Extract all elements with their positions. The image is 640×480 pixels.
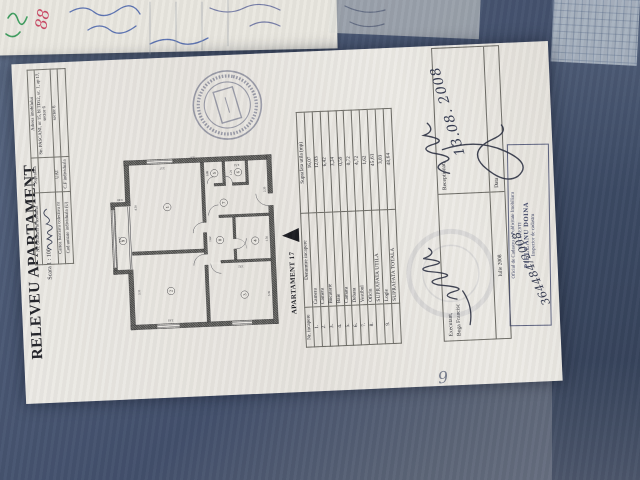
receptionat-signature bbox=[423, 119, 523, 182]
dimension-label: 3.37 bbox=[118, 236, 122, 242]
handwritten-scribble bbox=[41, 202, 54, 254]
dimension-label: 2.20 bbox=[262, 186, 266, 192]
dimension-label: 4.50 bbox=[133, 205, 137, 211]
apartment-caption: APARTAMENT 17 bbox=[287, 251, 298, 314]
dimension-label: 1.50 bbox=[264, 236, 268, 242]
dimension-label: 0.86 bbox=[205, 170, 209, 176]
room-circle-number: 2 bbox=[168, 290, 173, 292]
dimension-label: 5.97 bbox=[189, 155, 195, 159]
dimension-label: 2.51 bbox=[233, 163, 239, 167]
room-number-markers: 123456789 bbox=[116, 168, 261, 304]
photograph-of-document: 88 RELEVEU APARTAMENT Scara 1 : 100 Nr. … bbox=[0, 0, 640, 480]
room-area-table: Nr. incapere Denumire incapere Suprafata… bbox=[296, 108, 402, 348]
dimension-label: 0.90 bbox=[117, 198, 123, 202]
dimension-label: 3.57 bbox=[159, 166, 165, 170]
releveu-document-sheet: RELEVEU APARTAMENT Scara 1 : 100 Nr. cad… bbox=[11, 41, 562, 404]
dimension-label: 1.62 bbox=[208, 236, 212, 242]
signatures-overlay bbox=[386, 41, 563, 388]
fabric-background bbox=[552, 0, 640, 480]
svg-text:88: 88 bbox=[31, 7, 53, 30]
floor-plan: 123456789 3.313.374.503.633.570.902.515.… bbox=[106, 151, 284, 334]
room-circle-number: 1 bbox=[165, 206, 170, 208]
cadastral-header-table: Nr. cadastral al terenului Suprafata Adr… bbox=[27, 68, 74, 265]
dimension-label: 1.21 bbox=[229, 169, 233, 175]
cad-cf-individuala: C.F individuala bbox=[61, 156, 70, 191]
dimension-label: 3.63 bbox=[167, 318, 173, 322]
round-stamp bbox=[183, 60, 273, 150]
dimension-label: 1.92 bbox=[238, 264, 244, 268]
north-arrow-icon bbox=[282, 228, 300, 243]
cad-value-suprafata bbox=[38, 157, 55, 193]
dimension-label: 3.35 bbox=[267, 290, 271, 296]
dimension-label: 3.31 bbox=[137, 289, 141, 295]
